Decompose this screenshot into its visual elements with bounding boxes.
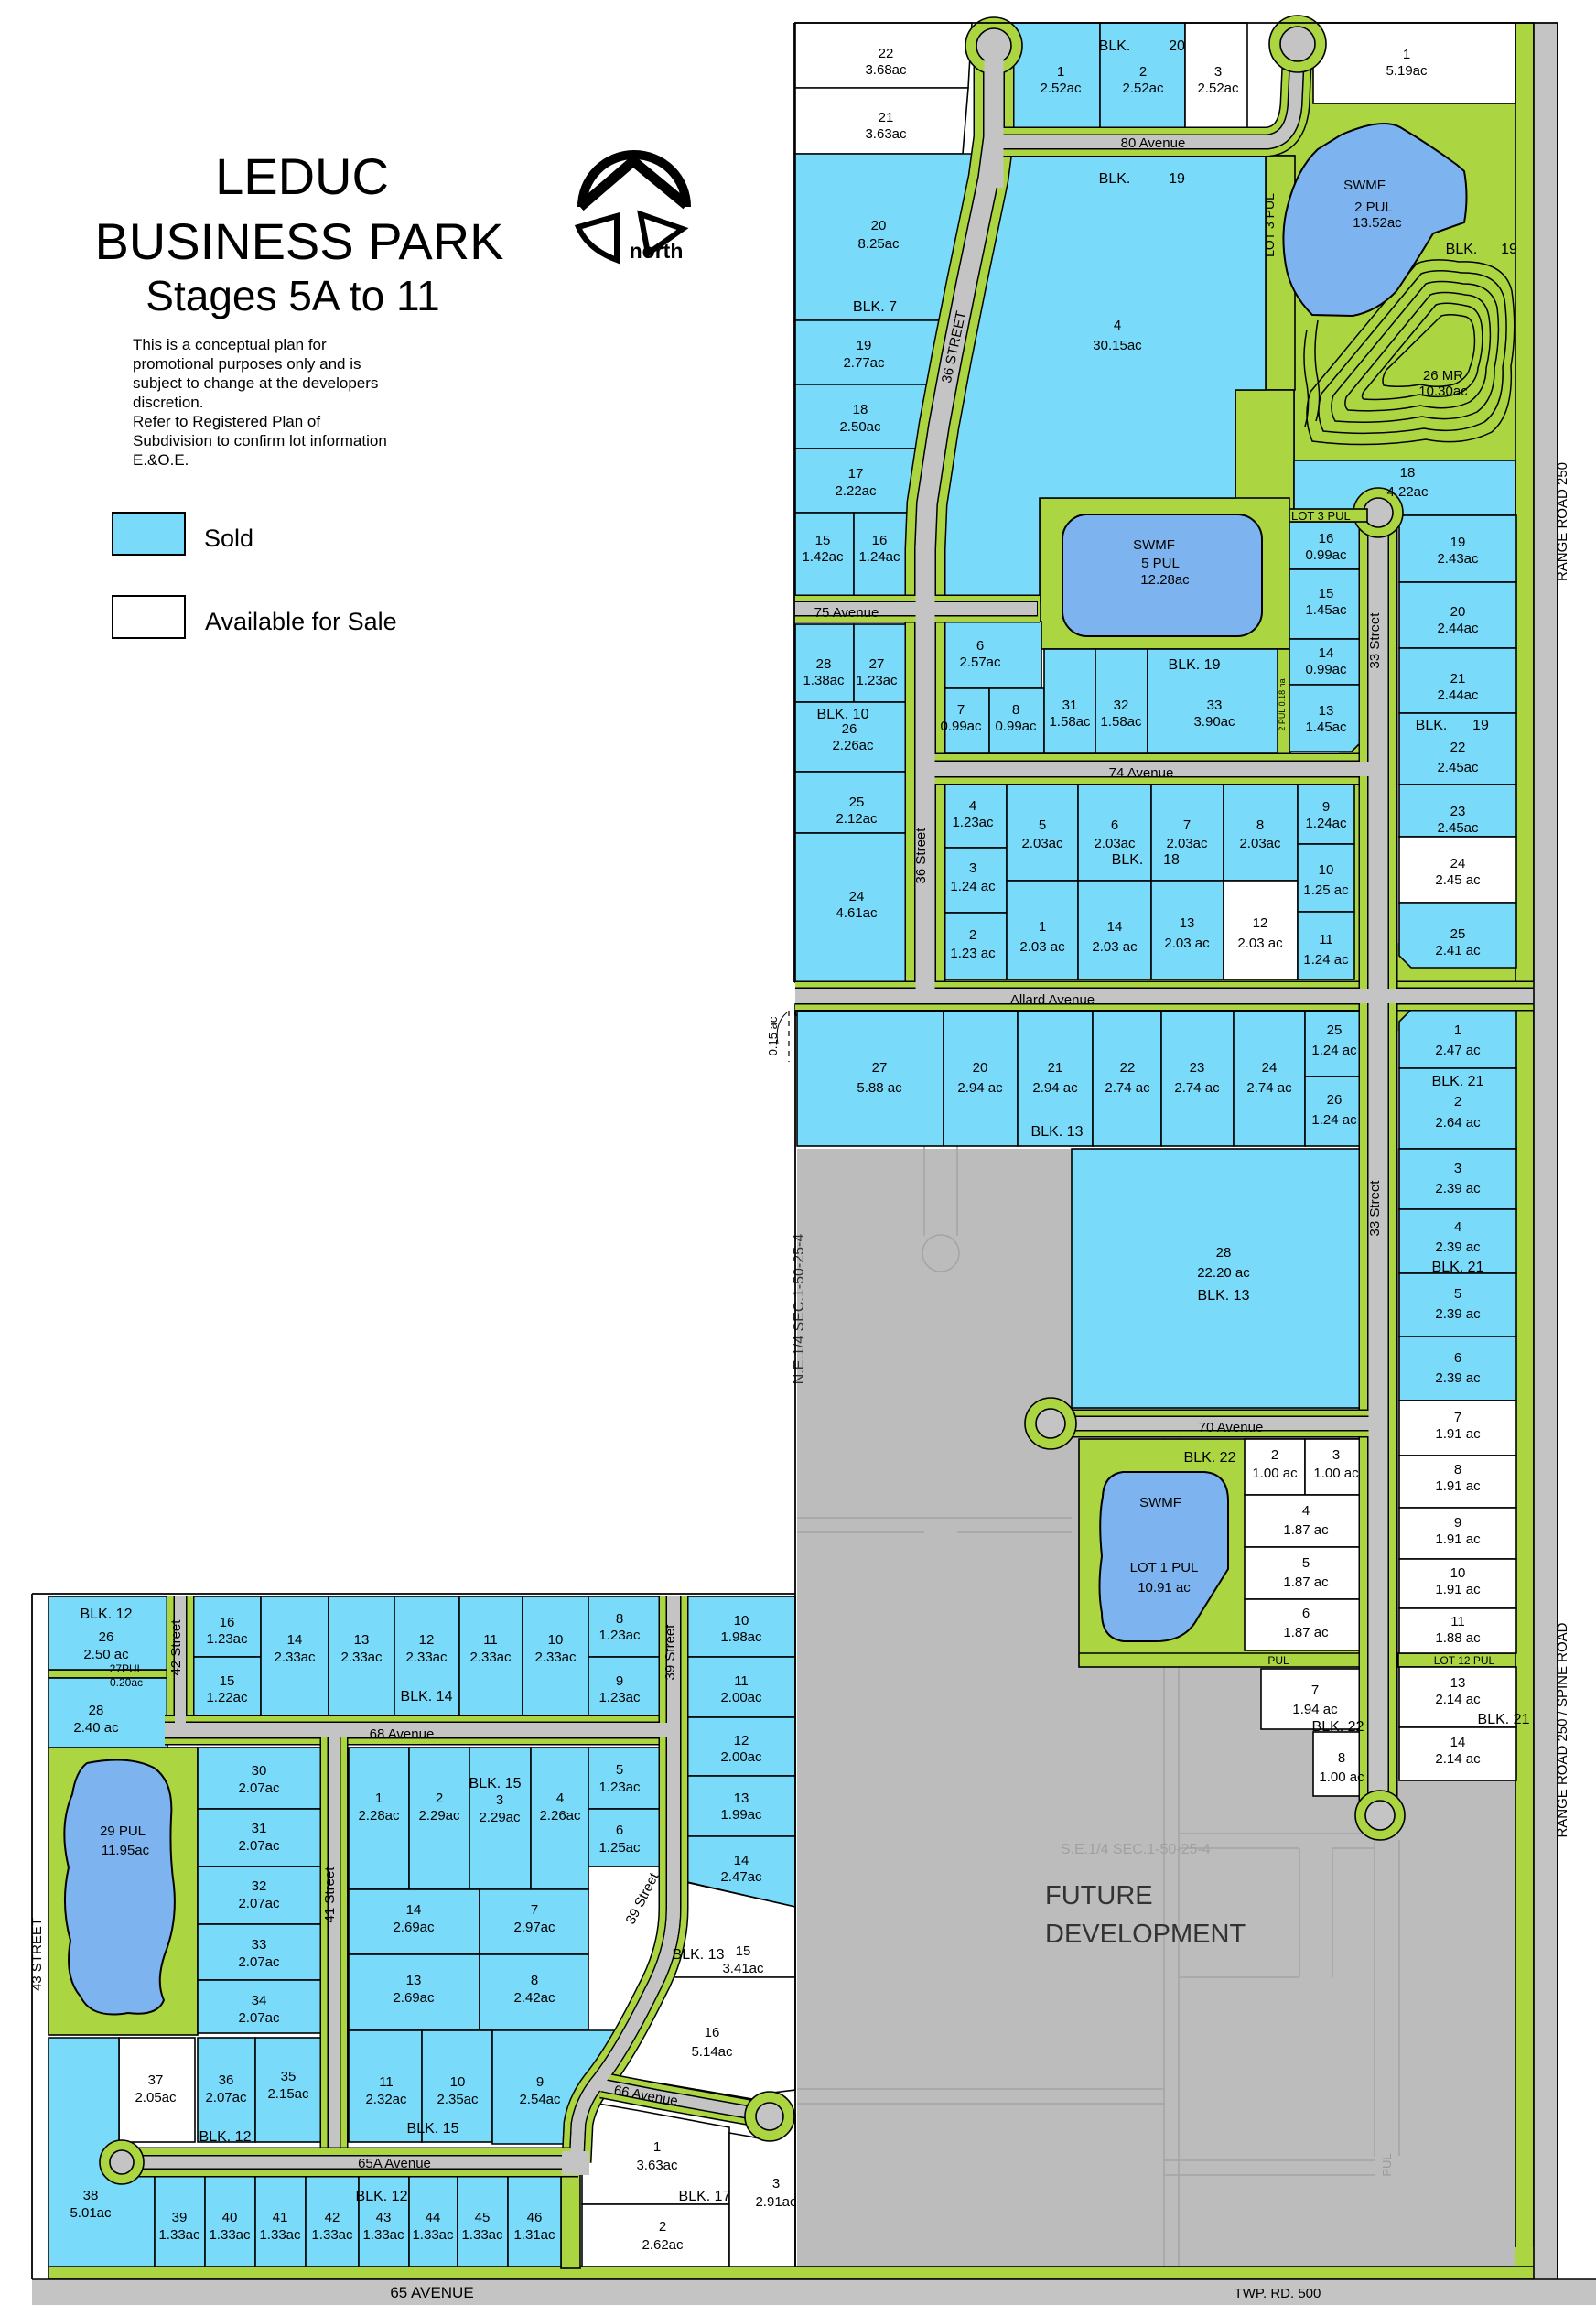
svg-text:2: 2 (436, 1791, 443, 1806)
svg-text:24: 24 (849, 889, 865, 904)
svg-text:21: 21 (1048, 1060, 1063, 1076)
svg-text:11: 11 (483, 1632, 498, 1648)
svg-text:22: 22 (1120, 1060, 1136, 1076)
svg-text:70 Avenue: 70 Avenue (1199, 1420, 1264, 1435)
svg-text:2.40 ac: 2.40 ac (73, 1720, 119, 1736)
svg-text:2.45ac: 2.45ac (1437, 820, 1479, 836)
svg-text:2.50 ac: 2.50 ac (83, 1647, 129, 1662)
svg-text:7: 7 (1311, 1683, 1319, 1698)
svg-text:24: 24 (1262, 1060, 1278, 1076)
svg-text:RANGE ROAD 250: RANGE ROAD 250 (1555, 462, 1570, 581)
svg-text:39 Street: 39 Street (663, 1624, 678, 1681)
svg-text:18: 18 (1163, 852, 1180, 868)
svg-text:5 PUL: 5 PUL (1141, 556, 1180, 571)
svg-text:BLK. 12: BLK. 12 (81, 1607, 133, 1622)
svg-text:33: 33 (252, 1937, 267, 1953)
svg-text:north: north (630, 239, 684, 263)
svg-text:26: 26 (842, 721, 857, 737)
svg-text:BLK. 13: BLK. 13 (1031, 1124, 1084, 1140)
svg-text:BLK.: BLK. (1099, 38, 1131, 54)
svg-text:2.47 ac: 2.47 ac (1435, 1043, 1481, 1058)
svg-text:2.29ac: 2.29ac (418, 1808, 460, 1823)
svg-text:1.23 ac: 1.23 ac (950, 946, 996, 961)
svg-text:2.42ac: 2.42ac (513, 1990, 555, 2006)
svg-text:2.44ac: 2.44ac (1437, 621, 1479, 636)
svg-text:2.47ac: 2.47ac (720, 1869, 762, 1885)
svg-text:1.22ac: 1.22ac (206, 1690, 248, 1705)
svg-text:7: 7 (1454, 1410, 1461, 1425)
svg-text:6: 6 (1111, 817, 1118, 833)
svg-text:10.30ac: 10.30ac (1418, 384, 1468, 399)
svg-text:TWP. RD. 500: TWP. RD. 500 (1235, 2286, 1321, 2301)
svg-text:2.32ac: 2.32ac (365, 2092, 407, 2107)
svg-text:0.20ac: 0.20ac (110, 1676, 143, 1689)
svg-text:32: 32 (1114, 698, 1129, 713)
svg-text:2.07ac: 2.07ac (238, 1780, 280, 1796)
svg-text:2.03ac: 2.03ac (1166, 836, 1208, 851)
svg-text:5: 5 (616, 1762, 623, 1778)
svg-text:28: 28 (816, 656, 832, 672)
svg-text:1.33ac: 1.33ac (412, 2227, 454, 2243)
svg-text:1.25 ac: 1.25 ac (1303, 882, 1349, 898)
svg-text:3: 3 (969, 860, 976, 876)
svg-text:18: 18 (1400, 465, 1416, 481)
svg-text:2.41 ac: 2.41 ac (1435, 943, 1481, 958)
svg-text:5: 5 (1039, 817, 1046, 833)
svg-text:1.24ac: 1.24ac (1305, 816, 1347, 831)
svg-text:33 Street: 33 Street (1367, 612, 1383, 669)
svg-text:10.91 ac: 10.91 ac (1138, 1580, 1191, 1596)
svg-text:1.88 ac: 1.88 ac (1435, 1630, 1481, 1646)
svg-text:FUTURE: FUTURE (1045, 1881, 1153, 1910)
svg-text:1.42ac: 1.42ac (802, 549, 844, 565)
svg-text:30.15ac: 30.15ac (1093, 338, 1142, 353)
svg-text:Available for Sale: Available for Sale (205, 608, 397, 635)
svg-text:1.00 ac: 1.00 ac (1252, 1466, 1298, 1481)
svg-text:20: 20 (1450, 604, 1466, 620)
svg-text:9: 9 (1454, 1515, 1461, 1531)
svg-text:6: 6 (976, 638, 984, 654)
svg-text:2.33ac: 2.33ac (274, 1650, 316, 1665)
svg-text:68 Avenue: 68 Avenue (370, 1726, 435, 1742)
svg-text:1.23ac: 1.23ac (598, 1780, 641, 1795)
svg-text:24: 24 (1450, 856, 1466, 871)
svg-text:15: 15 (220, 1673, 235, 1689)
svg-text:2.69ac: 2.69ac (393, 1990, 435, 2006)
svg-text:2.07ac: 2.07ac (238, 2010, 280, 2026)
svg-text:3: 3 (772, 2176, 780, 2191)
svg-text:19: 19 (857, 338, 872, 353)
svg-text:2: 2 (1271, 1447, 1278, 1463)
svg-text:2.03ac: 2.03ac (1094, 836, 1136, 851)
svg-text:BLK. 21: BLK. 21 (1432, 1260, 1484, 1275)
svg-text:2: 2 (969, 927, 976, 943)
svg-text:5.14ac: 5.14ac (691, 2044, 733, 2060)
svg-text:1.33ac: 1.33ac (311, 2227, 353, 2243)
svg-text:27PUL: 27PUL (110, 1662, 144, 1675)
svg-text:1.24 ac: 1.24 ac (1311, 1112, 1357, 1128)
svg-text:33: 33 (1207, 698, 1223, 713)
svg-text:3.63ac: 3.63ac (636, 2158, 678, 2173)
svg-text:DEVELOPMENT: DEVELOPMENT (1045, 1920, 1246, 1949)
svg-text:4.22ac: 4.22ac (1386, 484, 1429, 500)
svg-text:BLK. 12: BLK. 12 (356, 2189, 408, 2204)
svg-text:16: 16 (705, 2025, 720, 2040)
svg-text:4.61ac: 4.61ac (836, 905, 878, 921)
svg-text:16: 16 (1319, 531, 1334, 546)
svg-text:4: 4 (556, 1791, 564, 1806)
svg-text:2.44ac: 2.44ac (1437, 687, 1479, 703)
svg-text:LOT 3 PUL: LOT 3 PUL (1291, 509, 1351, 523)
svg-text:0.99ac: 0.99ac (1305, 547, 1347, 563)
svg-text:3.63ac: 3.63ac (865, 126, 907, 142)
svg-text:2: 2 (659, 2219, 666, 2235)
svg-text:discretion.: discretion. (133, 394, 203, 411)
svg-text:38: 38 (83, 2188, 99, 2203)
svg-text:2.05ac: 2.05ac (135, 2090, 177, 2105)
svg-text:BLK. 21: BLK. 21 (1432, 1074, 1484, 1089)
svg-text:15: 15 (1319, 586, 1334, 601)
svg-text:1: 1 (1039, 919, 1046, 935)
svg-text:BLK. 22: BLK. 22 (1312, 1719, 1364, 1735)
svg-text:18: 18 (853, 402, 868, 417)
svg-text:BUSINESS PARK: BUSINESS PARK (94, 212, 503, 270)
svg-text:8: 8 (531, 1973, 538, 1988)
svg-text:45: 45 (475, 2210, 491, 2225)
svg-text:13.52ac: 13.52ac (1353, 215, 1402, 231)
svg-text:11: 11 (734, 1673, 749, 1689)
svg-text:2.00ac: 2.00ac (720, 1690, 762, 1705)
svg-text:2.74 ac: 2.74 ac (1246, 1080, 1292, 1096)
svg-text:2 PUL: 2 PUL (1354, 200, 1393, 215)
svg-text:promotional purposes only and: promotional purposes only and is (133, 355, 361, 373)
svg-text:2.39 ac: 2.39 ac (1435, 1239, 1481, 1255)
svg-text:RANGE ROAD 250 / SPINE RO: RANGE ROAD 250 / SPINE ROAD (1555, 1622, 1570, 1837)
svg-text:6: 6 (1454, 1350, 1461, 1366)
svg-text:2.39 ac: 2.39 ac (1435, 1306, 1481, 1322)
svg-text:0.15 ac: 0.15 ac (766, 1016, 780, 1055)
svg-text:2.64 ac: 2.64 ac (1435, 1115, 1481, 1131)
svg-text:2.00ac: 2.00ac (720, 1749, 762, 1765)
svg-text:13: 13 (406, 1973, 422, 1988)
svg-text:1.00 ac: 1.00 ac (1313, 1466, 1359, 1481)
svg-text:1: 1 (375, 1791, 383, 1806)
svg-text:BLK. 14: BLK. 14 (401, 1689, 453, 1704)
svg-text:23: 23 (1450, 804, 1466, 819)
svg-text:Allard Avenue: Allard Avenue (1010, 992, 1095, 1008)
svg-text:16: 16 (220, 1615, 235, 1630)
svg-text:19: 19 (1472, 718, 1489, 733)
svg-text:3.68ac: 3.68ac (865, 62, 907, 78)
svg-text:28: 28 (1216, 1245, 1232, 1261)
svg-text:N.E.1/4 SEC.1-50-25-4: N.E.1/4 SEC.1-50-25-4 (792, 1234, 807, 1385)
svg-text:LOT 12 PUL: LOT 12 PUL (1434, 1654, 1495, 1667)
svg-text:1.94 ac: 1.94 ac (1292, 1702, 1338, 1717)
svg-text:23: 23 (1190, 1060, 1205, 1076)
svg-text:1.33ac: 1.33ac (209, 2227, 251, 2243)
svg-text:2.62ac: 2.62ac (642, 2237, 684, 2253)
svg-text:BLK. 17: BLK. 17 (679, 2189, 731, 2204)
svg-text:25: 25 (1327, 1023, 1343, 1038)
svg-text:65A Avenue: 65A Avenue (358, 2156, 431, 2171)
svg-text:Sold: Sold (204, 525, 253, 552)
svg-text:2.15ac: 2.15ac (267, 2086, 309, 2102)
svg-text:2.94 ac: 2.94 ac (1032, 1080, 1078, 1096)
svg-text:1.23ac: 1.23ac (598, 1690, 641, 1705)
svg-text:1.23ac: 1.23ac (952, 815, 994, 830)
svg-text:BLK. 13: BLK. 13 (673, 1947, 725, 1963)
svg-text:20: 20 (1169, 38, 1185, 54)
svg-text:14: 14 (1450, 1735, 1466, 1750)
svg-text:22: 22 (1450, 740, 1466, 755)
svg-text:2.14 ac: 2.14 ac (1435, 1751, 1481, 1767)
svg-text:22.20 ac: 22.20 ac (1197, 1265, 1250, 1281)
svg-text:27: 27 (872, 1060, 888, 1076)
svg-text:1.91 ac: 1.91 ac (1435, 1426, 1481, 1442)
svg-text:20: 20 (973, 1060, 988, 1076)
svg-text:1.23ac: 1.23ac (598, 1628, 641, 1643)
svg-text:5: 5 (1302, 1555, 1310, 1571)
svg-text:BLK.: BLK. (1416, 718, 1448, 733)
svg-text:BLK. 19: BLK. 19 (1169, 657, 1221, 673)
svg-text:BLK. 12: BLK. 12 (199, 2129, 252, 2145)
svg-text:4: 4 (1114, 318, 1121, 333)
svg-text:8: 8 (1256, 817, 1264, 833)
svg-text:9: 9 (616, 1673, 623, 1689)
svg-text:Subdivision to confirm lot inf: Subdivision to confirm lot information (133, 432, 387, 449)
svg-text:4: 4 (1302, 1503, 1310, 1519)
svg-text:2.39 ac: 2.39 ac (1435, 1370, 1481, 1386)
svg-text:2.69ac: 2.69ac (393, 1920, 435, 1935)
svg-text:Stages 5A to 11: Stages 5A to 11 (146, 272, 439, 319)
svg-text:6: 6 (616, 1823, 623, 1838)
svg-text:BLK. 21: BLK. 21 (1478, 1712, 1530, 1727)
svg-text:2.54ac: 2.54ac (519, 2092, 561, 2107)
svg-text:1.25ac: 1.25ac (598, 1840, 641, 1856)
svg-text:3: 3 (496, 1792, 503, 1808)
svg-text:7: 7 (1183, 817, 1191, 833)
svg-text:1.00 ac: 1.00 ac (1319, 1769, 1364, 1785)
svg-text:1.33ac: 1.33ac (259, 2227, 301, 2243)
svg-text:2.07ac: 2.07ac (238, 1838, 280, 1854)
svg-text:1.33ac: 1.33ac (461, 2227, 503, 2243)
svg-text:1.24ac: 1.24ac (858, 549, 900, 565)
svg-text:2.26ac: 2.26ac (832, 738, 874, 753)
svg-text:36 Street: 36 Street (913, 828, 929, 884)
svg-text:1.45ac: 1.45ac (1305, 720, 1347, 735)
svg-text:1.91 ac: 1.91 ac (1435, 1582, 1481, 1597)
svg-text:14: 14 (1107, 919, 1123, 935)
svg-text:65 AVENUE: 65 AVENUE (390, 2284, 473, 2301)
svg-text:4: 4 (969, 798, 976, 814)
svg-text:1.87 ac: 1.87 ac (1283, 1625, 1329, 1640)
svg-text:BLK. 15: BLK. 15 (407, 2121, 459, 2137)
svg-text:28: 28 (89, 1703, 104, 1718)
svg-text:1.38ac: 1.38ac (803, 673, 845, 688)
svg-text:11: 11 (1450, 1614, 1465, 1629)
svg-text:75 Avenue: 75 Avenue (814, 605, 879, 621)
svg-text:32: 32 (252, 1878, 267, 1894)
svg-text:11: 11 (379, 2074, 394, 2090)
svg-text:1.23ac: 1.23ac (856, 673, 898, 688)
svg-text:10: 10 (734, 1613, 749, 1629)
svg-text:10: 10 (450, 2074, 466, 2090)
svg-text:30: 30 (252, 1763, 267, 1779)
svg-text:8: 8 (1454, 1462, 1461, 1477)
svg-text:16: 16 (872, 533, 888, 548)
svg-text:17: 17 (848, 466, 864, 482)
svg-text:2.33ac: 2.33ac (340, 1650, 383, 1665)
svg-text:1.91 ac: 1.91 ac (1435, 1478, 1481, 1494)
svg-text:39: 39 (172, 2210, 188, 2225)
svg-text:2.03ac: 2.03ac (1239, 836, 1281, 851)
svg-text:2.03 ac: 2.03 ac (1164, 936, 1210, 951)
svg-text:10: 10 (548, 1632, 564, 1648)
svg-text:E.&O.E.: E.&O.E. (133, 451, 189, 469)
svg-text:2.03 ac: 2.03 ac (1019, 939, 1065, 955)
svg-text:2.12ac: 2.12ac (836, 811, 878, 827)
svg-text:13: 13 (1319, 703, 1334, 719)
svg-text:2.77ac: 2.77ac (843, 355, 885, 371)
svg-text:13: 13 (734, 1791, 749, 1806)
svg-text:7: 7 (957, 702, 965, 718)
svg-text:7: 7 (531, 1902, 538, 1918)
svg-text:31: 31 (1062, 698, 1078, 713)
svg-text:2.07ac: 2.07ac (238, 1954, 280, 1970)
svg-text:1.24 ac: 1.24 ac (1303, 952, 1349, 968)
svg-text:14: 14 (406, 1902, 422, 1918)
svg-text:43 STREET: 43 STREET (29, 1918, 45, 1991)
svg-text:5.19ac: 5.19ac (1386, 63, 1428, 79)
svg-text:BLK.: BLK. (1446, 242, 1478, 257)
svg-text:21: 21 (879, 110, 894, 125)
svg-text:8: 8 (1012, 702, 1019, 718)
svg-text:1.98ac: 1.98ac (720, 1629, 762, 1645)
svg-text:1: 1 (653, 2139, 661, 2155)
svg-text:5.01ac: 5.01ac (70, 2205, 112, 2221)
svg-text:1: 1 (1454, 1023, 1461, 1038)
svg-text:1.58ac: 1.58ac (1049, 714, 1091, 730)
svg-text:S.E.1/4 SEC.1-50-25-4: S.E.1/4 SEC.1-50-25-4 (1061, 1842, 1211, 1857)
svg-text:0.99ac: 0.99ac (995, 719, 1037, 734)
svg-text:14: 14 (1319, 645, 1334, 661)
svg-text:8: 8 (1338, 1750, 1345, 1766)
svg-text:1.24 ac: 1.24 ac (1311, 1043, 1357, 1058)
svg-text:26: 26 (1327, 1092, 1343, 1108)
svg-text:2.52ac: 2.52ac (1197, 81, 1239, 96)
svg-text:This is a conceptual plan for: This is a conceptual plan for (133, 336, 327, 353)
svg-text:14: 14 (287, 1632, 303, 1648)
svg-text:42: 42 (325, 2210, 340, 2225)
svg-text:3: 3 (1214, 64, 1222, 80)
svg-text:2.74 ac: 2.74 ac (1174, 1080, 1220, 1096)
svg-text:37: 37 (148, 2072, 164, 2088)
svg-text:2.03 ac: 2.03 ac (1092, 939, 1138, 955)
svg-text:10: 10 (1319, 862, 1334, 878)
svg-text:2 PUL 0.18 ha: 2 PUL 0.18 ha (1278, 678, 1287, 730)
svg-text:LEDUC: LEDUC (215, 147, 389, 205)
svg-text:0.99ac: 0.99ac (1305, 662, 1347, 677)
svg-text:1.91 ac: 1.91 ac (1435, 1531, 1481, 1547)
svg-text:BLK. 7: BLK. 7 (853, 299, 897, 315)
svg-text:2.45 ac: 2.45 ac (1435, 872, 1481, 888)
svg-text:27: 27 (869, 656, 885, 672)
svg-text:2.07ac: 2.07ac (238, 1896, 280, 1911)
svg-text:19: 19 (1169, 171, 1185, 187)
svg-text:3.41ac: 3.41ac (722, 1961, 764, 1976)
svg-text:9: 9 (536, 2074, 544, 2090)
svg-text:4: 4 (1454, 1219, 1461, 1235)
svg-text:80 Avenue: 80 Avenue (1121, 135, 1186, 151)
svg-text:3: 3 (1454, 1161, 1461, 1176)
svg-text:2.35ac: 2.35ac (437, 2092, 479, 2107)
svg-text:44: 44 (426, 2210, 441, 2225)
svg-text:1.99ac: 1.99ac (720, 1807, 762, 1823)
svg-text:1.33ac: 1.33ac (158, 2227, 200, 2243)
svg-text:1.23ac: 1.23ac (206, 1631, 248, 1647)
svg-text:13: 13 (1450, 1675, 1466, 1691)
svg-text:1.31ac: 1.31ac (513, 2227, 555, 2243)
svg-text:BLK. 13: BLK. 13 (1198, 1288, 1250, 1304)
svg-text:33 Street: 33 Street (1367, 1180, 1383, 1237)
svg-text:3.90ac: 3.90ac (1193, 714, 1235, 730)
svg-text:BLK. 10: BLK. 10 (817, 707, 869, 722)
svg-text:1.24 ac: 1.24 ac (950, 879, 996, 894)
svg-text:LOT 1 PUL: LOT 1 PUL (1130, 1560, 1199, 1575)
svg-text:2.29ac: 2.29ac (479, 1810, 521, 1825)
svg-text:LOT 3 PUL: LOT 3 PUL (1262, 193, 1277, 257)
svg-text:2.45ac: 2.45ac (1437, 760, 1479, 775)
svg-text:2.52ac: 2.52ac (1040, 81, 1082, 96)
svg-text:BLK. 22: BLK. 22 (1184, 1450, 1236, 1466)
svg-text:2.03 ac: 2.03 ac (1237, 936, 1283, 951)
svg-text:40: 40 (222, 2210, 238, 2225)
svg-text:2.57ac: 2.57ac (959, 655, 1001, 670)
svg-text:5: 5 (1454, 1286, 1461, 1302)
svg-text:1.58ac: 1.58ac (1100, 714, 1142, 730)
svg-text:2.91ac: 2.91ac (755, 2194, 797, 2210)
svg-text:22: 22 (879, 46, 894, 61)
svg-text:BLK. 15: BLK. 15 (469, 1776, 522, 1791)
svg-text:46: 46 (527, 2210, 543, 2225)
svg-text:19: 19 (1450, 535, 1466, 550)
svg-text:1.33ac: 1.33ac (362, 2227, 404, 2243)
svg-text:15: 15 (736, 1943, 751, 1959)
svg-text:25: 25 (1450, 926, 1466, 942)
svg-text:14: 14 (734, 1853, 749, 1868)
svg-text:2.94 ac: 2.94 ac (957, 1080, 1003, 1096)
svg-text:12: 12 (734, 1733, 749, 1748)
svg-text:21: 21 (1450, 671, 1466, 687)
svg-text:BLK.: BLK. (1112, 852, 1144, 868)
svg-text:2.26ac: 2.26ac (539, 1808, 581, 1823)
svg-text:36: 36 (219, 2072, 234, 2088)
svg-text:0.99ac: 0.99ac (940, 719, 982, 734)
svg-text:8: 8 (616, 1611, 623, 1627)
svg-text:1: 1 (1403, 47, 1410, 62)
svg-text:19: 19 (1501, 242, 1517, 257)
svg-text:2.14 ac: 2.14 ac (1435, 1692, 1481, 1707)
svg-text:SWMF: SWMF (1139, 1495, 1181, 1510)
svg-text:1.45ac: 1.45ac (1305, 602, 1347, 618)
svg-text:1.87 ac: 1.87 ac (1283, 1575, 1329, 1590)
svg-text:20: 20 (871, 218, 887, 233)
svg-text:74 Avenue: 74 Avenue (1109, 765, 1174, 781)
svg-text:12.28ac: 12.28ac (1140, 572, 1190, 588)
svg-text:2.28ac: 2.28ac (358, 1808, 400, 1823)
svg-text:2.74 ac: 2.74 ac (1105, 1080, 1150, 1096)
svg-text:15: 15 (815, 533, 831, 548)
